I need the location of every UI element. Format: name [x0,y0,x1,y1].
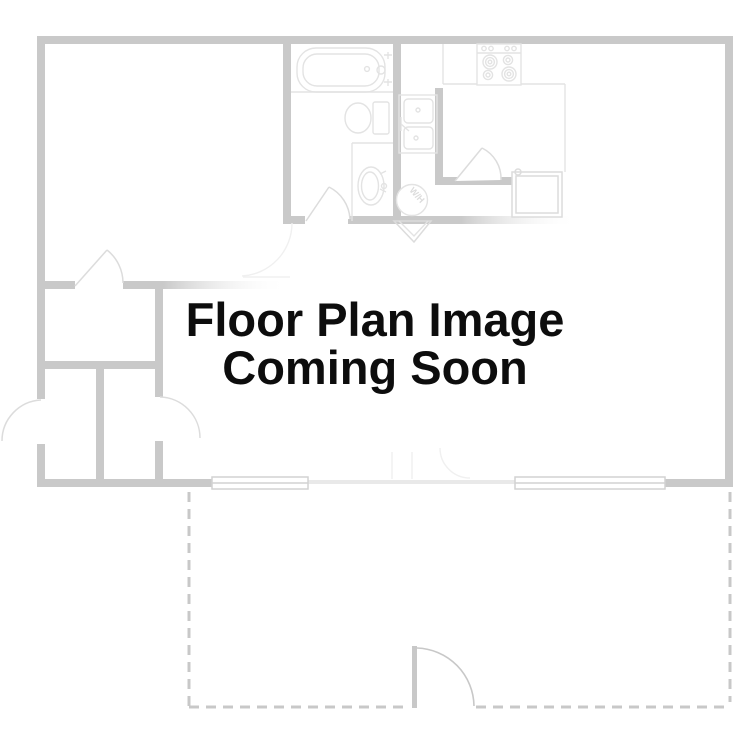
top-wall [37,36,733,44]
patio-outline [189,492,730,707]
watermark-line1: Floor Plan Image [0,296,750,344]
bathtub-icon [297,48,392,92]
window-left [212,477,308,489]
closet-right-wall-lower [155,441,163,487]
hall-wall-left [283,216,305,224]
closet-door-arc [160,397,200,438]
stove-icon [477,44,521,85]
bathroom-sink-icon [358,167,387,205]
coming-soon-watermark: Floor Plan Image Coming Soon [0,296,750,392]
laundry-bifold-door [394,221,431,242]
hall-wall-mid [348,216,460,224]
bottom-wall-left [37,479,212,487]
kitchen-sink-icon [399,95,437,153]
hallway-door-arc [242,223,292,277]
patio-door [412,646,474,708]
bottom-wall-middle-faded [308,480,515,484]
patio-main-door-faded [392,448,470,479]
kitchen-door [455,148,501,181]
water-heater-icon: W/H [397,185,428,216]
window-right [515,477,665,489]
right-wall [725,36,733,487]
bathroom-left-wall [283,36,291,224]
toilet-icon [345,102,389,134]
exterior-walls [37,36,733,489]
bedroom-wall-faded [163,281,288,289]
bedroom-door [75,250,123,286]
entry-door-arc [2,400,41,441]
refrigerator-icon [512,169,562,217]
bedroom-wall-left [37,281,75,289]
watermark-line2: Coming Soon [0,344,750,392]
bathroom-door [306,187,350,221]
kitchen-left-wall [435,88,443,185]
bottom-wall-right [665,479,733,487]
